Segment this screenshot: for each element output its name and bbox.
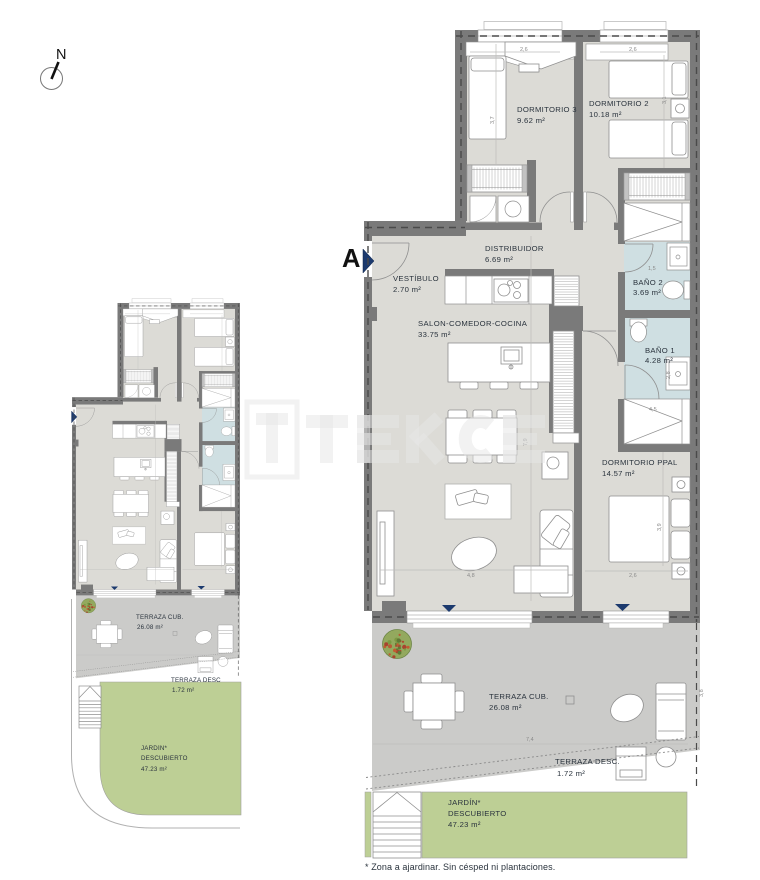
svg-text:1.72 m²: 1.72 m² bbox=[172, 687, 194, 694]
svg-text:3,8: 3,8 bbox=[699, 689, 705, 697]
svg-text:26.08 m²: 26.08 m² bbox=[489, 703, 522, 712]
svg-text:DORMITORIO 2: DORMITORIO 2 bbox=[589, 99, 649, 108]
svg-text:47.23 m²: 47.23 m² bbox=[141, 766, 167, 773]
svg-text:* Zona a ajardinar. Sin césped: * Zona a ajardinar. Sin césped ni planta… bbox=[365, 862, 555, 872]
svg-text:DISTRIBUIDOR: DISTRIBUIDOR bbox=[485, 244, 544, 253]
svg-text:DESCUBIERTO: DESCUBIERTO bbox=[141, 755, 188, 762]
svg-text:33.75 m²: 33.75 m² bbox=[418, 330, 451, 339]
svg-text:26.08 m²: 26.08 m² bbox=[137, 624, 163, 631]
svg-text:JARDÍN*: JARDÍN* bbox=[141, 745, 168, 752]
svg-text:DORMITORIO 3: DORMITORIO 3 bbox=[517, 105, 577, 114]
svg-text:3,7: 3,7 bbox=[490, 116, 496, 124]
svg-text:4,5: 4,5 bbox=[649, 407, 657, 413]
svg-text:JARDÍN*: JARDÍN* bbox=[448, 798, 481, 807]
svg-text:47.23 m²: 47.23 m² bbox=[448, 820, 481, 829]
svg-text:1.72 m²: 1.72 m² bbox=[557, 769, 585, 778]
svg-text:BAÑO 1: BAÑO 1 bbox=[645, 346, 675, 355]
svg-text:2.70 m²: 2.70 m² bbox=[393, 285, 421, 294]
svg-text:SALON-COMEDOR-COCINA: SALON-COMEDOR-COCINA bbox=[418, 319, 528, 328]
svg-text:1,5: 1,5 bbox=[648, 266, 656, 272]
svg-text:VESTÍBULO: VESTÍBULO bbox=[393, 274, 439, 283]
svg-text:2,8: 2,8 bbox=[666, 371, 672, 379]
svg-text:2,6: 2,6 bbox=[520, 47, 528, 53]
svg-text:2,6: 2,6 bbox=[629, 47, 637, 53]
svg-text:DORMITORIO PPAL: DORMITORIO PPAL bbox=[602, 458, 678, 467]
svg-text:4,8: 4,8 bbox=[467, 573, 475, 579]
svg-text:7,4: 7,4 bbox=[526, 737, 534, 743]
svg-text:TERRAZA DESC.: TERRAZA DESC. bbox=[555, 757, 620, 766]
svg-text:14.57 m²: 14.57 m² bbox=[602, 469, 635, 478]
svg-text:4.28 m²: 4.28 m² bbox=[645, 356, 673, 365]
svg-text:A: A bbox=[342, 245, 360, 273]
svg-text:TERRAZA CUB.: TERRAZA CUB. bbox=[136, 614, 184, 621]
svg-text:6.69 m²: 6.69 m² bbox=[485, 255, 513, 264]
svg-text:DESCUBIERTO: DESCUBIERTO bbox=[448, 809, 507, 818]
svg-text:TERRAZA CUB.: TERRAZA CUB. bbox=[489, 692, 549, 701]
svg-text:2,6: 2,6 bbox=[629, 573, 637, 579]
svg-text:9.62 m²: 9.62 m² bbox=[517, 116, 545, 125]
svg-text:TERRAZA DESC: TERRAZA DESC bbox=[171, 677, 221, 684]
svg-text:3,1: 3,1 bbox=[662, 96, 668, 104]
svg-text:3,9: 3,9 bbox=[657, 523, 663, 531]
svg-text:BAÑO 2: BAÑO 2 bbox=[633, 278, 663, 287]
svg-text:10.18 m²: 10.18 m² bbox=[589, 110, 622, 119]
svg-text:3.69 m²: 3.69 m² bbox=[633, 288, 661, 297]
svg-text:N: N bbox=[56, 47, 66, 63]
